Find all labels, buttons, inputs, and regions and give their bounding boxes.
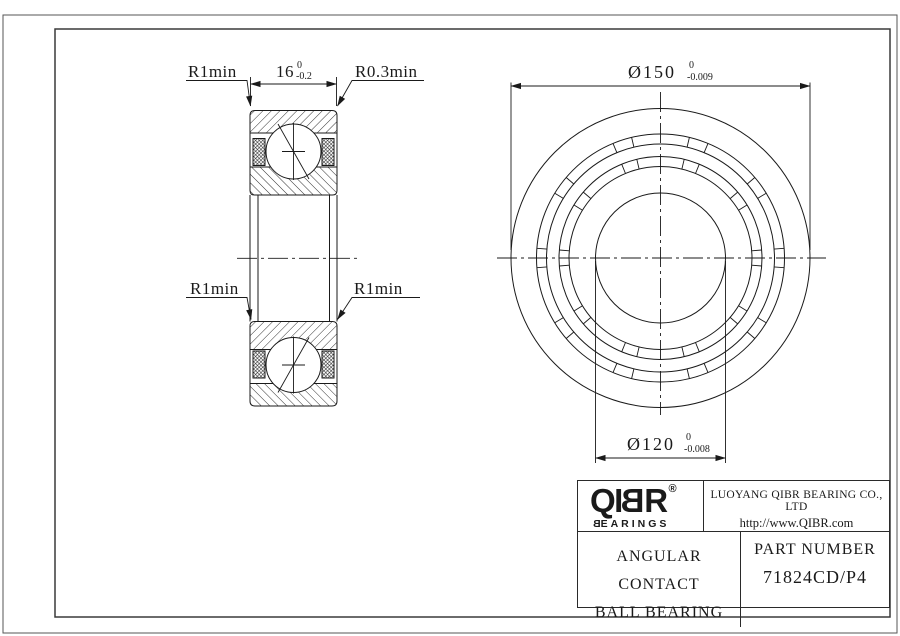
cage-bridge-line <box>622 164 626 173</box>
leader-r1min-top-left <box>186 81 251 107</box>
logo-sub-reversed-b: B <box>590 518 601 530</box>
logo-subtitle: BEARINGS <box>590 518 703 530</box>
cage-bridge-line <box>758 318 767 323</box>
dim-width-tol-upper: 0 <box>297 60 302 71</box>
cage-top-left <box>253 139 265 166</box>
dim-width-value: 16 <box>276 62 294 81</box>
cage-bridge-line <box>739 306 748 311</box>
cage-bridge-line <box>730 317 738 324</box>
leader-r03min-top-right <box>338 81 425 107</box>
cage-bridge-line <box>622 343 626 352</box>
section-view <box>237 111 357 407</box>
label-r1min-top: R1min <box>188 62 237 81</box>
dim-outer-tol-upper: 0 <box>689 60 694 71</box>
qibr-logo: QIBR® <box>590 484 703 517</box>
product-type-line1: ANGULAR CONTACT <box>578 543 740 599</box>
dim-width-tol-lower: -0.2 <box>296 71 312 82</box>
product-type-line2: BALL BEARING <box>578 599 740 627</box>
cage-bridge-line <box>752 250 762 251</box>
cage-bridge-line <box>774 267 784 268</box>
cage-bridge-line <box>747 178 755 185</box>
logo-part1: QI <box>590 482 622 519</box>
cage-bridge-line <box>537 267 547 268</box>
part-number-label: PART NUMBER <box>741 541 889 559</box>
dim-bore-tol-lower: -0.008 <box>684 444 710 455</box>
cage-bridge-line <box>566 178 574 185</box>
dim-outer-tol-lower: -0.009 <box>687 72 713 83</box>
dim-width <box>251 77 337 106</box>
leader-r1min-mid-left <box>186 298 251 320</box>
cage-bridge-line <box>687 137 689 147</box>
logo-sub-rest: EARINGS <box>601 518 670 530</box>
cage-bridge-line <box>739 205 748 210</box>
cage-bottom-left <box>253 351 265 378</box>
cage-bridge-line <box>758 193 767 198</box>
cage-bridge-line <box>730 192 738 199</box>
company-name: LUOYANG QIBR BEARING CO., LTD <box>704 489 889 513</box>
cage-bridge-line <box>687 369 689 379</box>
cage-bottom-right <box>322 351 334 378</box>
cage-bridge-line <box>632 369 634 379</box>
cage-bridge-line <box>555 193 564 198</box>
cage-bridge-line <box>696 343 700 352</box>
cage-bridge-line <box>613 363 617 372</box>
drawing-sheet: 16 0 -0.2 R1min R0.3min R1min R1min Ø150… <box>0 0 900 636</box>
cage-bridge-line <box>559 265 569 266</box>
dim-bore-value: Ø120 <box>627 434 675 454</box>
label-r03min: R0.3min <box>355 62 418 81</box>
label-r1min-right: R1min <box>354 279 403 298</box>
logo-text: QIBR <box>590 484 667 517</box>
company-website[interactable]: http://www.QIBR.com <box>704 516 889 531</box>
cage-bridge-line <box>574 306 583 311</box>
cage-bridge-line <box>559 250 569 251</box>
title-block: QIBR® BEARINGS LUOYANG QIBR BEARING CO.,… <box>577 480 890 608</box>
cage-bridge-line <box>704 363 708 372</box>
cage-bridge-line <box>752 265 762 266</box>
cage-bridge-line <box>537 248 547 249</box>
cage-bridge-line <box>637 159 639 169</box>
front-view <box>497 92 826 415</box>
cage-top-right <box>322 139 334 166</box>
dim-bore-tol-upper: 0 <box>686 432 691 443</box>
company-cell: LUOYANG QIBR BEARING CO., LTD http://www… <box>704 481 889 531</box>
product-type-cell: ANGULAR CONTACT BALL BEARING <box>578 532 741 627</box>
logo-reversed-b: B <box>622 484 644 517</box>
cage-bridge-line <box>583 317 591 324</box>
cage-bridge-line <box>637 347 639 357</box>
part-number-cell: PART NUMBER 71824CD/P4 <box>741 532 889 627</box>
cage-bridge-line <box>696 164 700 173</box>
dim-outer-value: Ø150 <box>628 62 676 82</box>
cage-bridge-line <box>555 318 564 323</box>
logo-part2: R <box>644 482 666 519</box>
cage-bridge-line <box>566 332 574 339</box>
title-block-top-row: QIBR® BEARINGS LUOYANG QIBR BEARING CO.,… <box>578 481 889 532</box>
cage-bridge-line <box>774 248 784 249</box>
cage-bridge-line <box>583 192 591 199</box>
cage-bridge-line <box>574 205 583 210</box>
cage-bridge-line <box>704 143 708 152</box>
cage-bridge-line <box>747 332 755 339</box>
cage-bridge-line <box>613 143 617 152</box>
cage-bridge-line <box>682 159 684 169</box>
title-block-bottom-row: ANGULAR CONTACT BALL BEARING PART NUMBER… <box>578 532 889 627</box>
cage-bridge-line <box>682 347 684 357</box>
cage-bridge-line <box>632 137 634 147</box>
leader-r1min-mid-right <box>338 298 421 320</box>
label-r1min-left: R1min <box>190 279 239 298</box>
logo-cell: QIBR® BEARINGS <box>578 481 704 531</box>
registered-trademark-symbol: ® <box>669 483 677 495</box>
part-number-value: 71824CD/P4 <box>741 567 889 588</box>
